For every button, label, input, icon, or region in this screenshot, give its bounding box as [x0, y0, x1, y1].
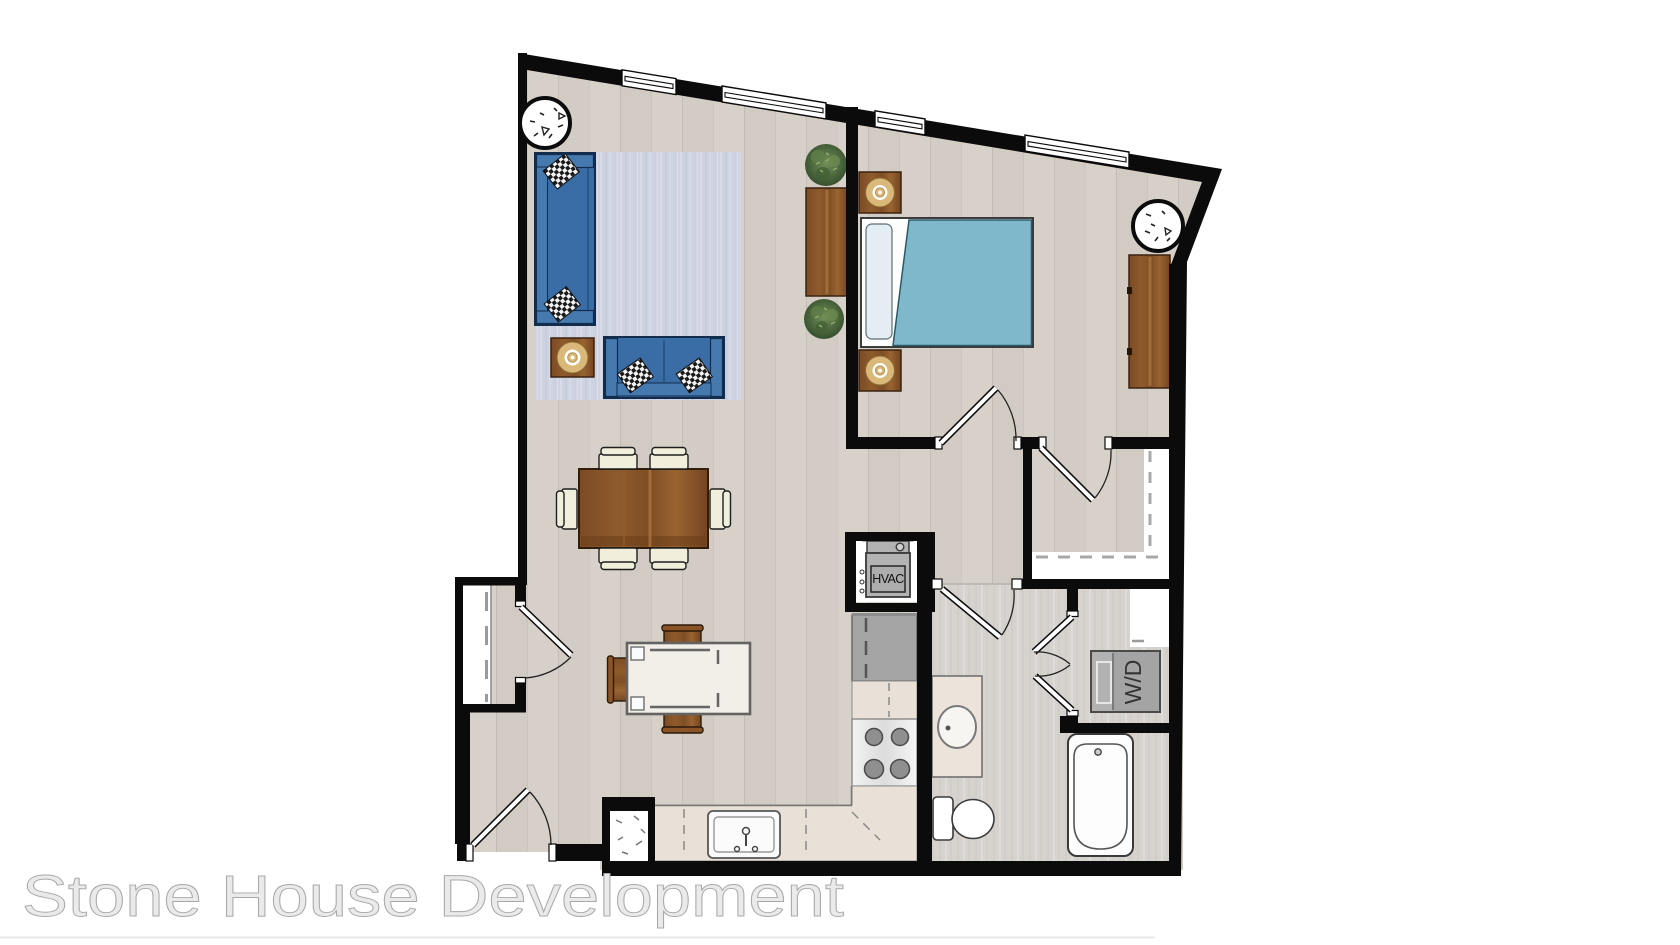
svg-text:HVAC: HVAC: [872, 572, 904, 586]
svg-text:Stone House Development: Stone House Development: [22, 864, 844, 929]
svg-text:W/D: W/D: [1120, 660, 1146, 705]
